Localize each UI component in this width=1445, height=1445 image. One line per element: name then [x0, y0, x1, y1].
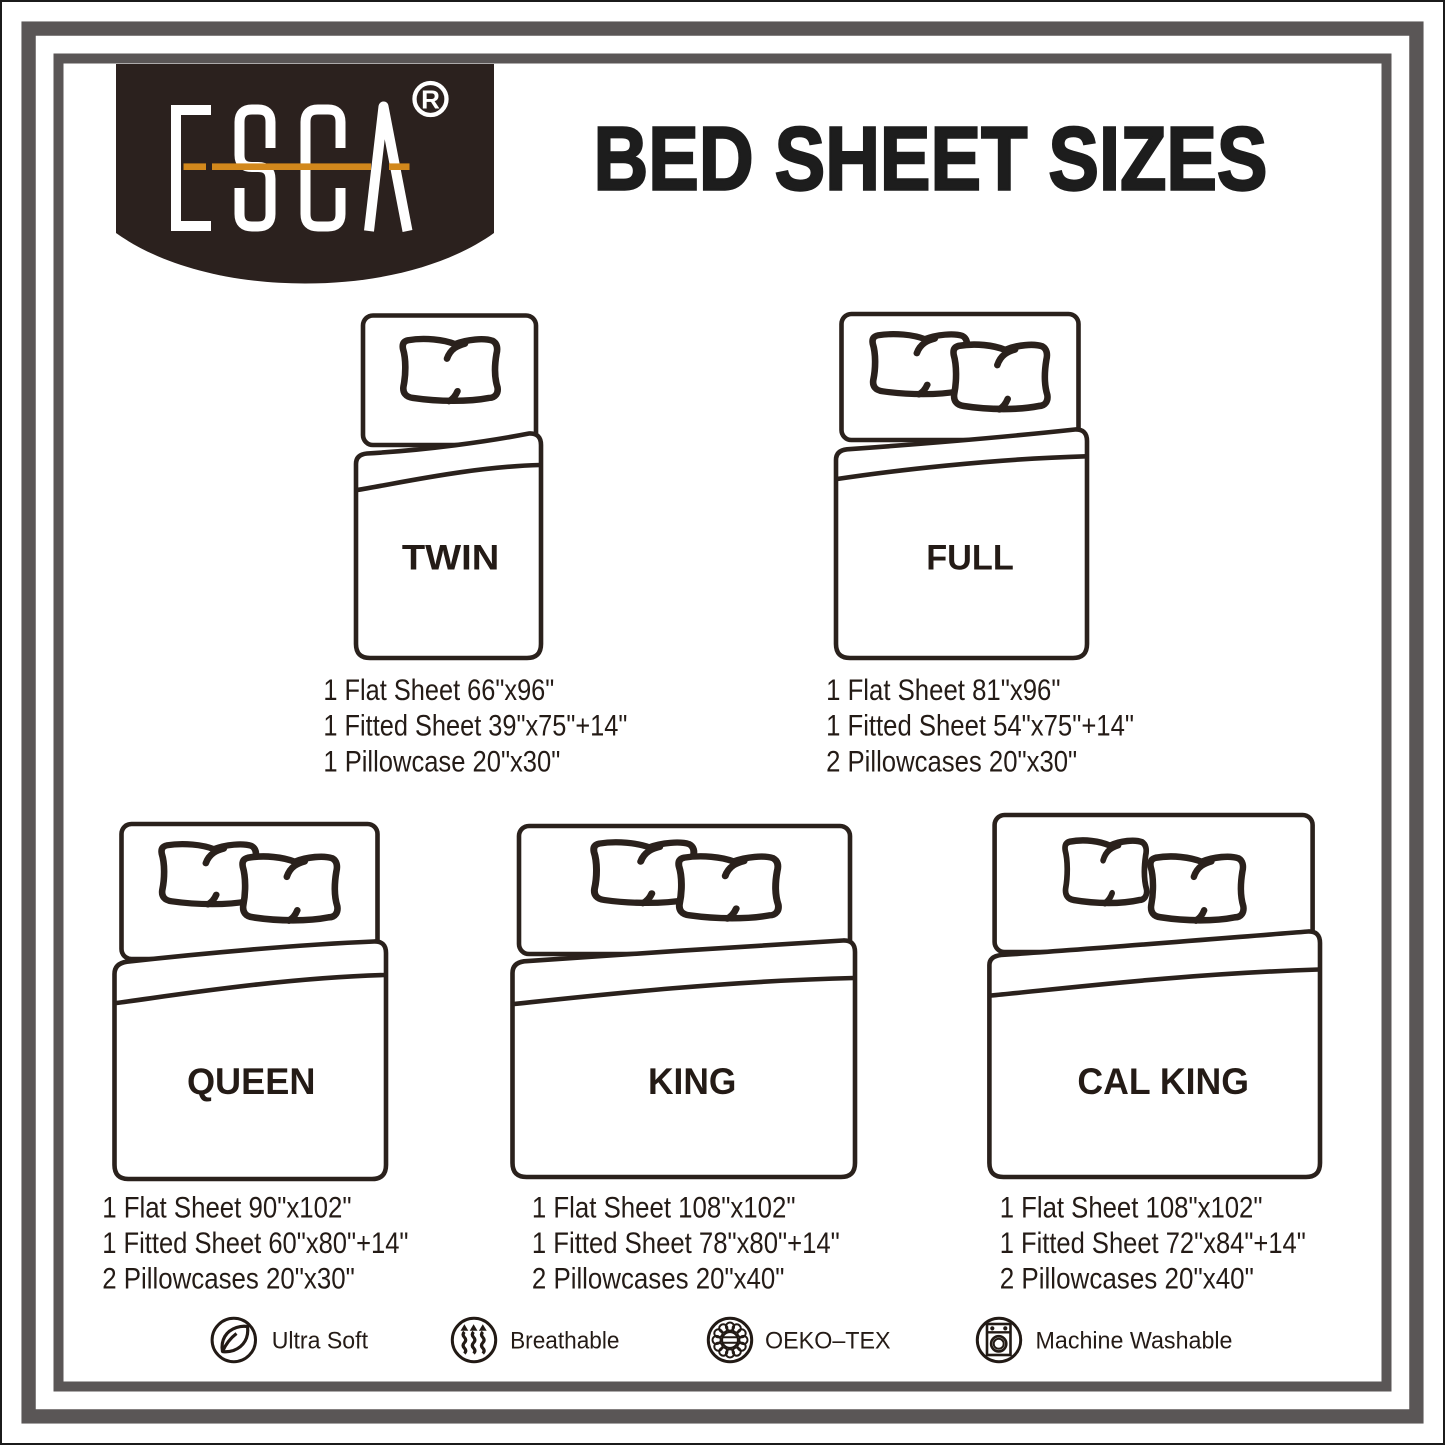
svg-text:1 Flat Sheet 81"x96": 1 Flat Sheet 81"x96" — [826, 675, 1060, 707]
svg-text:Breathable: Breathable — [510, 1329, 619, 1355]
svg-text:1 Fitted Sheet 78"x80"+14": 1 Fitted Sheet 78"x80"+14" — [532, 1228, 840, 1260]
svg-text:Ultra Soft: Ultra Soft — [272, 1329, 369, 1355]
svg-text:1 Flat Sheet 108"x102": 1 Flat Sheet 108"x102" — [532, 1193, 796, 1225]
svg-text:1 Flat Sheet 66"x96": 1 Flat Sheet 66"x96" — [323, 675, 554, 707]
svg-text:BED SHEET SIZES: BED SHEET SIZES — [594, 110, 1268, 210]
svg-text:2 Pillowcases 20"x40": 2 Pillowcases 20"x40" — [1000, 1264, 1254, 1296]
svg-text:CAL KING: CAL KING — [1077, 1061, 1249, 1102]
svg-text:TWIN: TWIN — [402, 538, 499, 578]
svg-text:2 Pillowcases 20"x40": 2 Pillowcases 20"x40" — [532, 1264, 785, 1296]
svg-text:QUEEN: QUEEN — [187, 1061, 316, 1102]
svg-text:Machine Washable: Machine Washable — [1036, 1329, 1233, 1355]
svg-text:1 Pillowcase 20"x30": 1 Pillowcase 20"x30" — [323, 746, 560, 778]
svg-text:1 Flat Sheet 90"x102": 1 Flat Sheet 90"x102" — [102, 1193, 351, 1225]
svg-text:1 Fitted Sheet 60"x80"+14": 1 Fitted Sheet 60"x80"+14" — [102, 1228, 408, 1260]
svg-text:2 Pillowcases 20"x30": 2 Pillowcases 20"x30" — [102, 1264, 355, 1296]
svg-text:R: R — [421, 84, 440, 114]
svg-text:1 Flat Sheet 108"x102": 1 Flat Sheet 108"x102" — [1000, 1193, 1263, 1225]
svg-text:1 Fitted Sheet 72"x84"+14": 1 Fitted Sheet 72"x84"+14" — [1000, 1228, 1306, 1260]
svg-text:1 Fitted Sheet 39"x75"+14": 1 Fitted Sheet 39"x75"+14" — [323, 711, 627, 743]
svg-text:KING: KING — [648, 1061, 736, 1102]
svg-text:FULL: FULL — [926, 538, 1014, 578]
svg-text:OEKO–TEX: OEKO–TEX — [765, 1329, 891, 1355]
svg-text:1 Fitted Sheet 54"x75"+14": 1 Fitted Sheet 54"x75"+14" — [826, 711, 1134, 743]
svg-text:2 Pillowcases 20"x30": 2 Pillowcases 20"x30" — [826, 746, 1077, 778]
